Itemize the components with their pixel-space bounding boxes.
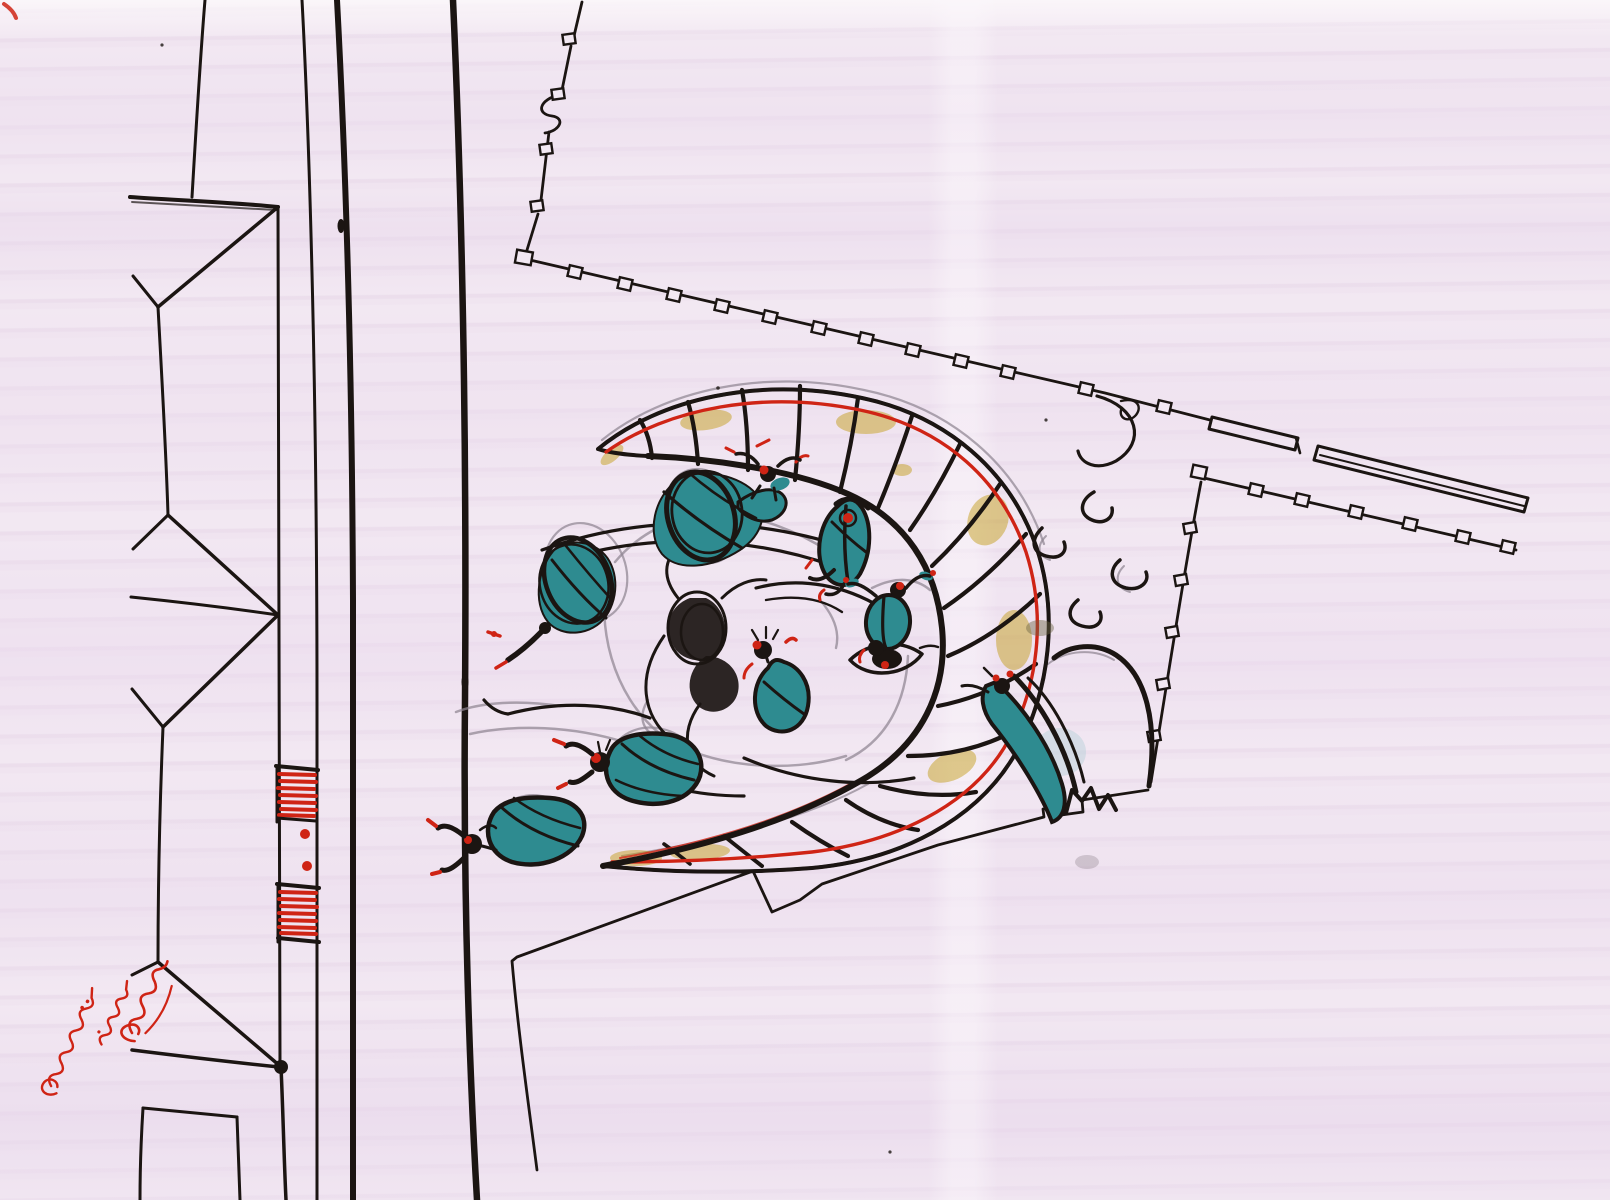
zigzag-base — [1066, 788, 1116, 813]
teal-figure-crossing-street — [428, 798, 584, 874]
ink-blip — [462, 674, 469, 690]
wall-bar-short — [1209, 417, 1298, 450]
red-tick-on-crescent — [757, 440, 769, 446]
figure-head — [843, 513, 853, 523]
corner-marker — [1191, 465, 1207, 480]
hook-arc — [1078, 396, 1135, 466]
wall-bars — [1209, 417, 1528, 512]
wall-bar-long — [1314, 446, 1528, 512]
teal-figure-shell — [554, 734, 701, 804]
survey-boundary-right — [1147, 465, 1516, 782]
street-line-4-thick — [453, 0, 477, 1200]
crosswalk — [276, 766, 319, 942]
teal-figure-pear-center — [744, 627, 809, 732]
ink-blip — [338, 219, 345, 233]
building-outlines — [130, 197, 288, 1200]
street-line-3-thick — [337, 0, 353, 1200]
sketch-canvas — [0, 0, 1610, 1200]
red-dot — [300, 829, 310, 839]
street-line-short — [192, 0, 205, 197]
street-grid — [192, 0, 477, 1200]
smoke-curls — [1034, 492, 1147, 627]
street-line-2 — [302, 0, 317, 1200]
sketch-drawing — [0, 0, 1610, 1200]
red-dot — [302, 861, 312, 871]
corner-marker — [515, 250, 533, 266]
corner-mark — [4, 4, 16, 18]
